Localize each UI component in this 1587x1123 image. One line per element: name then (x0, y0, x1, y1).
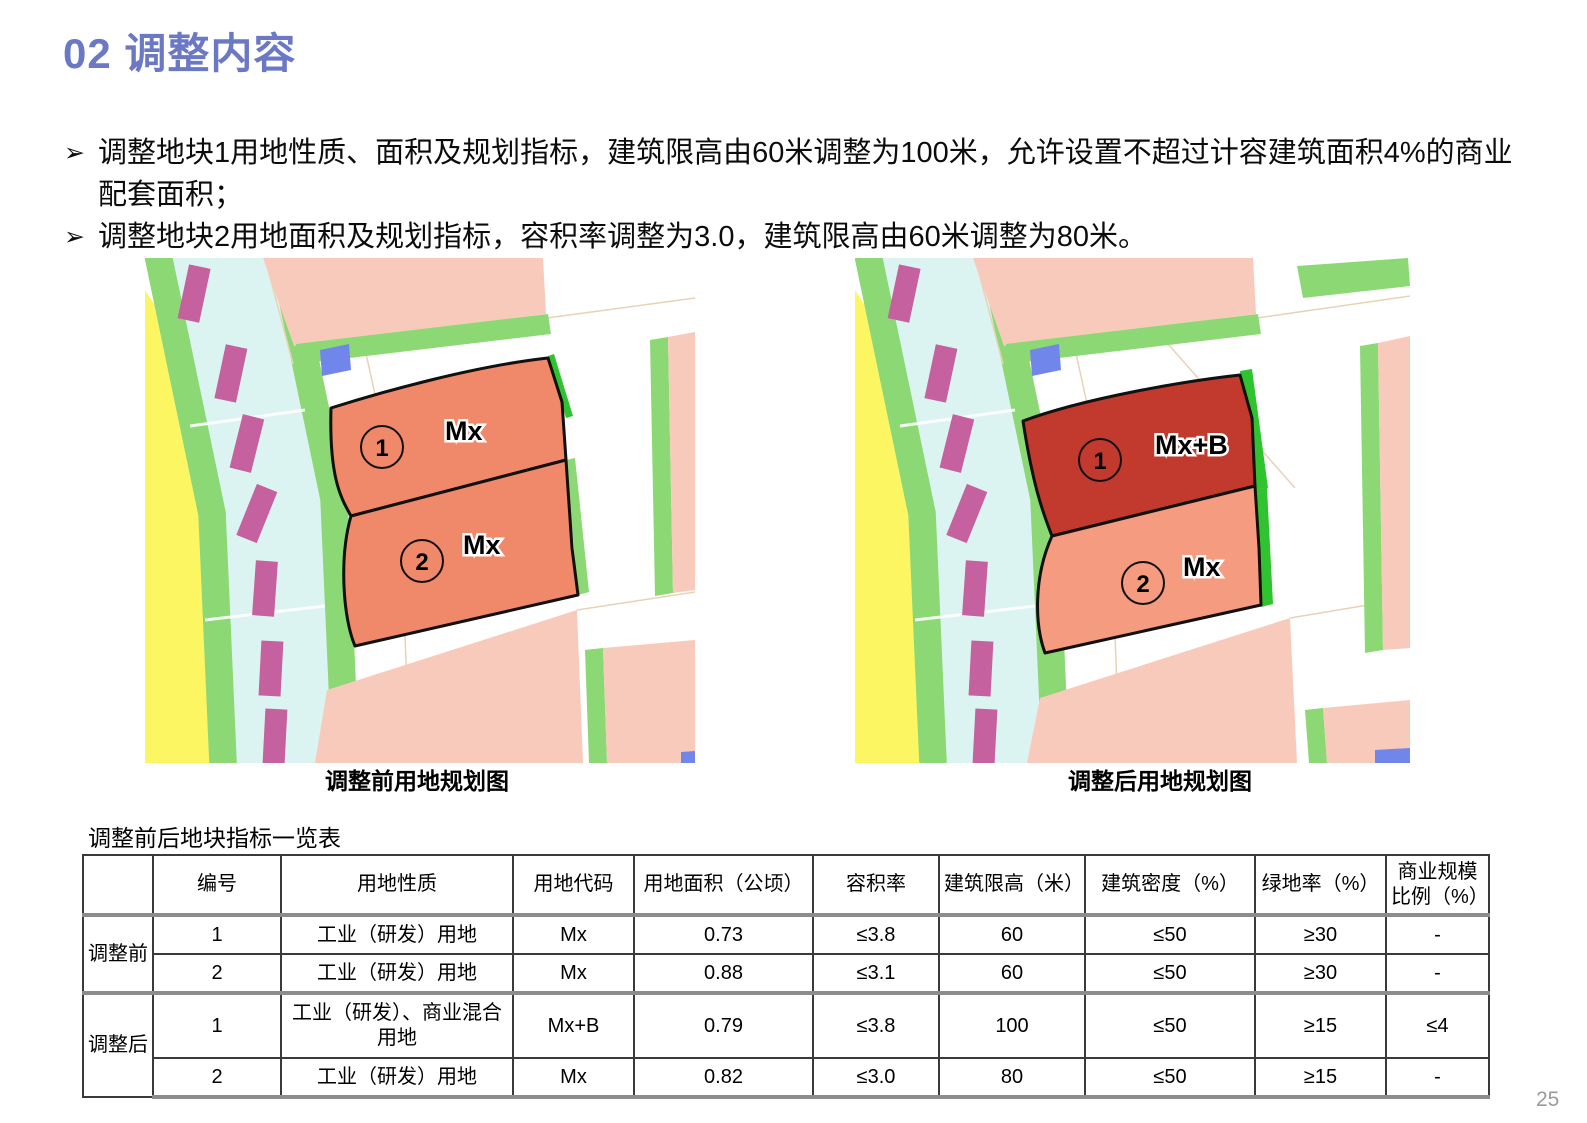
parcel-2-number: 2 (1136, 571, 1149, 598)
parcel-2-code: Mx (463, 530, 501, 560)
table-cell: 2 (153, 954, 281, 993)
parcel-1-code: Mx+B (1155, 430, 1228, 460)
bullet-item: ➢ 调整地块2用地面积及规划指标，容积率调整为3.0，建筑限高由60米调整为80… (64, 216, 1536, 258)
bullet-item: ➢ 调整地块1用地性质、面积及规划指标，建筑限高由60米调整为100米，允许设置… (64, 132, 1536, 216)
table-header-cell: 绿地率（%） (1255, 855, 1386, 915)
table-header-cell: 用地代码 (513, 855, 634, 915)
table-header-cell: 用地性质 (281, 855, 513, 915)
page-title: 02 调整内容 (63, 20, 296, 81)
table-header-row: 编号 用地性质 用地代码 用地面积（公顷） 容积率 建筑限高（米） 建筑密度（%… (83, 855, 1489, 915)
table-cell: - (1386, 954, 1489, 993)
table-row: 调整前 1 工业（研发）用地 Mx 0.73 ≤3.8 60 ≤50 ≥30 - (83, 915, 1489, 954)
table-cell: 0.82 (634, 1058, 813, 1097)
parcel-1-code: Mx (445, 416, 483, 446)
table-cell: ≤50 (1085, 954, 1255, 993)
bullet-text: 调整地块1用地性质、面积及规划指标，建筑限高由60米调整为100米，允许设置不超… (98, 132, 1536, 216)
map-after-caption: 调整后用地规划图 (1068, 762, 1252, 796)
table-cell: 1 (153, 915, 281, 954)
table-cell: - (1386, 1058, 1489, 1097)
map-before-caption: 调整前用地规划图 (325, 762, 509, 796)
table-cell: Mx (513, 915, 634, 954)
page-number: 25 (1536, 1088, 1559, 1112)
table-cell: ≤3.8 (813, 993, 939, 1058)
table-cell: ≤50 (1085, 1058, 1255, 1097)
bullet-arrow-icon: ➢ (64, 216, 98, 255)
table-cell: ≤3.0 (813, 1058, 939, 1097)
table-cell: Mx+B (513, 993, 634, 1058)
land-use-map-after: 1 Mx+B 2 Mx (855, 258, 1410, 768)
land-use-map-before: 1 Mx 2 Mx (145, 258, 695, 768)
table-cell: 0.79 (634, 993, 813, 1058)
table-cell: ≥15 (1255, 993, 1386, 1058)
table-cell: 100 (939, 993, 1085, 1058)
table-cell: 工业（研发）用地 (281, 915, 513, 954)
table-cell: 60 (939, 954, 1085, 993)
table-header-cell: 商业规模比例（%） (1386, 855, 1489, 915)
map-before-parcels: 1 Mx 2 Mx (331, 354, 589, 646)
table-cell: ≤4 (1386, 993, 1489, 1058)
map-after-parcels: 1 Mx+B 2 Mx (1023, 369, 1273, 653)
table-cell: Mx (513, 954, 634, 993)
table-cell: ≥15 (1255, 1058, 1386, 1097)
bullet-list: ➢ 调整地块1用地性质、面积及规划指标，建筑限高由60米调整为100米，允许设置… (64, 132, 1536, 258)
table-header-cell: 建筑密度（%） (1085, 855, 1255, 915)
slide: 02 调整内容 ➢ 调整地块1用地性质、面积及规划指标，建筑限高由60米调整为1… (0, 0, 1587, 1123)
table-cell: 1 (153, 993, 281, 1058)
table-cell: 工业（研发）用地 (281, 954, 513, 993)
table-cell: ≥30 (1255, 954, 1386, 993)
table-header-cell (83, 855, 153, 915)
table-cell: - (1386, 915, 1489, 954)
table-cell: 80 (939, 1058, 1085, 1097)
table-cell: ≤50 (1085, 915, 1255, 954)
table-cell: 60 (939, 915, 1085, 954)
bullet-arrow-icon: ➢ (64, 132, 98, 171)
map-after-svg: 1 Mx+B 2 Mx (855, 258, 1410, 763)
table-cell: ≤3.1 (813, 954, 939, 993)
group-label-cell: 调整前 (83, 915, 153, 993)
table-row: 调整后 1 工业（研发）、商业混合用地 Mx+B 0.79 ≤3.8 100 ≤… (83, 993, 1489, 1058)
table-cell: 工业（研发）、商业混合用地 (281, 993, 513, 1058)
table-title: 调整前后地块指标一览表 (88, 819, 341, 853)
table-cell: ≤50 (1085, 993, 1255, 1058)
indicator-table: 编号 用地性质 用地代码 用地面积（公顷） 容积率 建筑限高（米） 建筑密度（%… (82, 854, 1490, 1099)
table-header-cell: 编号 (153, 855, 281, 915)
table-header-cell: 用地面积（公顷） (634, 855, 813, 915)
bullet-text: 调整地块2用地面积及规划指标，容积率调整为3.0，建筑限高由60米调整为80米。 (98, 216, 1536, 258)
table-cell: ≥30 (1255, 915, 1386, 954)
parcel-1-number: 1 (1093, 448, 1106, 475)
parcel-2-code: Mx (1183, 552, 1221, 582)
table-cell: 工业（研发）用地 (281, 1058, 513, 1097)
table-cell: Mx (513, 1058, 634, 1097)
parcel-1-number: 1 (375, 435, 388, 462)
parcel-2-number: 2 (415, 549, 428, 576)
table-row: 2 工业（研发）用地 Mx 0.88 ≤3.1 60 ≤50 ≥30 - (83, 954, 1489, 993)
table-cell: ≤3.8 (813, 915, 939, 954)
table-header-cell: 建筑限高（米） (939, 855, 1085, 915)
group-label-cell: 调整后 (83, 993, 153, 1097)
table-row: 2 工业（研发）用地 Mx 0.82 ≤3.0 80 ≤50 ≥15 - (83, 1058, 1489, 1097)
table-cell: 0.73 (634, 915, 813, 954)
table-cell: 2 (153, 1058, 281, 1097)
map-before-svg: 1 Mx 2 Mx (145, 258, 695, 763)
table-header-cell: 容积率 (813, 855, 939, 915)
table-cell: 0.88 (634, 954, 813, 993)
